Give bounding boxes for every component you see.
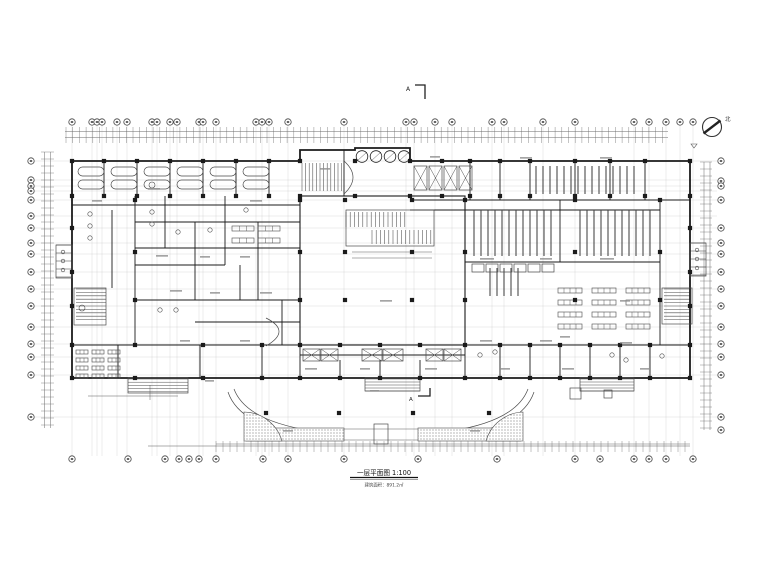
structural-column <box>573 298 577 302</box>
axis-bubble-number <box>720 305 722 307</box>
structural-column <box>264 411 268 415</box>
structural-column <box>658 298 662 302</box>
tiny-annotation-text <box>156 255 168 257</box>
axis-bubble-number <box>30 271 32 273</box>
table <box>92 350 104 354</box>
axis-bubble-number <box>648 121 650 123</box>
structural-column <box>688 270 692 274</box>
axis-bubble-number <box>188 458 190 460</box>
fixture-circle <box>174 308 178 312</box>
drawing-title: 一层平面图 1:100 <box>357 469 411 477</box>
structural-column <box>411 411 415 415</box>
structural-column <box>463 343 467 347</box>
axis-bubble-number <box>96 121 98 123</box>
fixture-rect <box>500 264 512 272</box>
structural-column <box>688 376 692 380</box>
fixture-circle <box>610 353 614 357</box>
structural-column <box>498 194 502 198</box>
tiny-annotation-text <box>320 168 330 170</box>
structural-column <box>338 376 342 380</box>
table <box>76 358 88 362</box>
structural-column <box>70 304 74 308</box>
axis-bubble-number <box>30 242 32 244</box>
table <box>232 226 254 231</box>
canopy-arc <box>344 161 353 194</box>
structural-column <box>648 343 652 347</box>
detail-line <box>385 152 395 161</box>
table <box>92 358 104 362</box>
structural-column <box>618 376 622 380</box>
hatched-fan <box>244 412 282 441</box>
axis-bubble-number <box>30 253 32 255</box>
structural-column <box>588 343 592 347</box>
structural-column <box>201 376 205 380</box>
structural-column <box>201 159 205 163</box>
axis-bubble-number <box>633 121 635 123</box>
tiny-annotation-text <box>148 188 160 190</box>
axis-bubble-number <box>720 160 722 162</box>
axis-bubble-number <box>720 416 722 418</box>
detail-line <box>371 152 381 161</box>
axis-bubble-number <box>665 121 667 123</box>
fixture-circle <box>176 230 180 234</box>
structural-column <box>463 250 467 254</box>
section-mark-top-bracket <box>415 85 425 99</box>
structural-column <box>343 198 347 202</box>
table <box>76 366 88 370</box>
structural-column <box>643 194 647 198</box>
fixture-rect <box>570 388 581 399</box>
structural-column <box>608 159 612 163</box>
structural-column <box>260 343 264 347</box>
tiny-annotation-text <box>240 340 250 342</box>
structural-column <box>201 194 205 198</box>
structural-column <box>337 411 341 415</box>
tiny-annotation-text <box>170 290 182 292</box>
structural-column <box>528 376 532 380</box>
structural-column <box>468 159 472 163</box>
section-mark-bottom-label: A <box>409 397 413 403</box>
tiny-annotation-text <box>425 368 437 370</box>
structural-column <box>487 411 491 415</box>
structural-column <box>102 194 106 198</box>
structural-column <box>608 194 612 198</box>
tiny-annotation-text <box>205 380 214 382</box>
axis-bubble-number <box>30 288 32 290</box>
tiny-annotation-text <box>620 300 630 302</box>
tiny-annotation-text <box>520 157 532 159</box>
structural-column <box>408 159 412 163</box>
axis-bubble-number <box>692 458 694 460</box>
axis-bubble-number <box>255 121 257 123</box>
fixture-rect <box>690 243 706 276</box>
axis-bubble-number <box>417 458 419 460</box>
equipment-stadium <box>111 167 137 176</box>
structural-column <box>234 194 238 198</box>
axis-bubble-number <box>215 458 217 460</box>
axis-bubble-number <box>720 429 722 431</box>
axis-bubble-number <box>30 343 32 345</box>
structural-column <box>70 226 74 230</box>
structural-column <box>498 159 502 163</box>
structural-column <box>378 376 382 380</box>
structural-column <box>343 250 347 254</box>
structural-column <box>298 343 302 347</box>
floorplan-drawing: 北 A A 一层平面图 1:100 建筑面积：891.2㎡ <box>0 0 760 570</box>
axis-bubble-number <box>30 215 32 217</box>
structural-column <box>70 376 74 380</box>
tiny-annotation-text <box>370 390 379 392</box>
structural-column <box>528 343 532 347</box>
tiny-annotation-text <box>360 368 370 370</box>
equipment-stadium <box>78 167 104 176</box>
tiny-annotation-text <box>560 336 570 338</box>
axis-bubble-number <box>30 160 32 162</box>
structural-column <box>658 198 662 202</box>
tiny-annotation-text <box>600 157 612 159</box>
tiny-annotation-text <box>260 292 272 294</box>
structural-column <box>70 343 74 347</box>
axis-bubble-number <box>720 271 722 273</box>
tiny-annotation-text <box>500 368 510 370</box>
courtyard-outline <box>300 196 465 345</box>
axis-bubble-number <box>101 121 103 123</box>
structural-column <box>298 298 302 302</box>
fixture-circle <box>88 224 92 228</box>
axis-bubble-number <box>30 190 32 192</box>
structural-column <box>70 194 74 198</box>
cad-floorplan-screenshot: 北 A A 一层平面图 1:100 建筑面积：891.2㎡ <box>0 0 760 570</box>
structural-column <box>343 298 347 302</box>
axis-bubble-number <box>30 416 32 418</box>
axis-bubble-number <box>720 227 722 229</box>
structural-column <box>298 376 302 380</box>
detail-line <box>357 152 367 161</box>
axis-bubble-number <box>287 458 289 460</box>
title-block: 一层平面图 1:100 建筑面积：891.2㎡ <box>350 469 418 489</box>
axis-bubble-number <box>720 343 722 345</box>
structural-column <box>298 198 302 202</box>
fixture-circle <box>158 308 162 312</box>
tiny-annotation-text <box>620 342 632 344</box>
structural-column <box>410 250 414 254</box>
structural-column <box>498 376 502 380</box>
structural-column <box>410 198 414 202</box>
table <box>76 350 88 354</box>
fixture-rect <box>472 264 484 272</box>
section-mark-bottom: A <box>409 388 430 403</box>
axis-bubble-number <box>156 121 158 123</box>
structural-column <box>573 198 577 202</box>
axis-bubble-number <box>574 121 576 123</box>
tiny-annotation-text <box>305 368 317 370</box>
structural-column <box>418 343 422 347</box>
axis-bubble-number <box>496 458 498 460</box>
axis-bubble-number <box>665 458 667 460</box>
tiny-annotation-text <box>380 300 392 302</box>
tiny-annotation-text <box>470 430 480 432</box>
table <box>92 366 104 370</box>
equipment-stadium <box>78 180 104 189</box>
axis-bubble-number <box>71 458 73 460</box>
equipment-stadium <box>210 180 236 189</box>
structural-column <box>573 159 577 163</box>
structural-column <box>267 159 271 163</box>
axis-bubble-number <box>720 288 722 290</box>
axis-bubble-number <box>679 121 681 123</box>
axis-bubble-number <box>202 121 204 123</box>
axis-bubble-number <box>692 121 694 123</box>
axis-bubble-number <box>413 121 415 123</box>
structural-column <box>588 376 592 380</box>
axis-bubble-number <box>126 121 128 123</box>
axis-bubble-number <box>720 326 722 328</box>
structural-column <box>688 159 692 163</box>
axis-bubble-number <box>599 458 601 460</box>
tiny-annotation-text <box>562 368 574 370</box>
axis-bubble-number <box>343 121 345 123</box>
structural-column <box>688 304 692 308</box>
structural-column <box>133 250 137 254</box>
structural-column <box>463 198 467 202</box>
tiny-annotation-text <box>210 292 220 294</box>
structural-column <box>378 343 382 347</box>
axis-bubble-number <box>30 179 32 181</box>
structural-column <box>408 194 412 198</box>
tiny-annotation-text <box>250 200 262 202</box>
axis-bubble-number <box>574 458 576 460</box>
fixture-circle <box>244 208 248 212</box>
axis-bubble-number <box>30 227 32 229</box>
structural-column <box>298 194 302 198</box>
structural-column <box>298 250 302 254</box>
axis-bubble-number <box>720 199 722 201</box>
axis-bubble-number <box>648 458 650 460</box>
axis-bubble-number <box>720 356 722 358</box>
axis-bubble-number <box>176 121 178 123</box>
structural-column <box>558 343 562 347</box>
fixture-rect <box>374 424 388 444</box>
axis-bubble-number <box>30 374 32 376</box>
axis-bubble-number <box>30 356 32 358</box>
north-label: 北 <box>725 115 731 123</box>
structural-column <box>70 159 74 163</box>
structural-column <box>688 194 692 198</box>
tiny-annotation-text <box>480 340 492 342</box>
axis-bubble-number <box>91 121 93 123</box>
structural-column <box>135 194 139 198</box>
fixture-rect <box>56 245 72 278</box>
axis-bubble-number <box>503 121 505 123</box>
table <box>232 238 254 243</box>
axis-bubble-number <box>169 121 171 123</box>
axis-bubble-number <box>491 121 493 123</box>
structural-column <box>102 159 106 163</box>
tiny-annotation-text <box>540 258 552 260</box>
fixture-rect <box>528 264 540 272</box>
axis-bubble-number <box>633 458 635 460</box>
structural-column <box>133 298 137 302</box>
hatched-fan <box>486 412 523 441</box>
axis-bubble-number <box>287 121 289 123</box>
axis-bubble-number <box>720 374 722 376</box>
structural-column <box>468 194 472 198</box>
structural-column <box>440 194 444 198</box>
fixture-rect <box>514 264 526 272</box>
structural-column <box>528 194 532 198</box>
fixture-circle <box>660 354 664 358</box>
axis-bubble-number <box>268 121 270 123</box>
axis-bubble-number <box>30 185 32 187</box>
structural-column <box>353 159 357 163</box>
axis-bubble-number <box>215 121 217 123</box>
structural-column <box>573 194 577 198</box>
axis-bubble-number <box>151 121 153 123</box>
axis-bubble-number <box>262 458 264 460</box>
detail-line <box>399 152 409 161</box>
north-arrow: 北 <box>691 115 731 148</box>
tiny-annotation-text <box>200 256 210 258</box>
structural-column <box>440 159 444 163</box>
structural-column <box>528 159 532 163</box>
fixture-circle <box>208 228 212 232</box>
fixture-circle <box>624 358 628 362</box>
structural-column <box>658 250 662 254</box>
axis-bubble-number <box>451 121 453 123</box>
axis-bubble-number <box>116 121 118 123</box>
structural-column <box>573 250 577 254</box>
structural-column <box>168 194 172 198</box>
structural-column <box>70 270 74 274</box>
dimension-lines <box>41 127 712 452</box>
tiny-annotation-text <box>600 258 614 260</box>
axis-bubble-number <box>30 305 32 307</box>
structural-column <box>133 343 137 347</box>
axis-bubble-number <box>71 121 73 123</box>
structural-column <box>298 159 302 163</box>
structural-column <box>133 376 137 380</box>
tiny-annotation-text <box>430 156 440 158</box>
structural-column <box>168 159 172 163</box>
fixture-circle <box>478 353 482 357</box>
structural-column <box>260 376 264 380</box>
drawing-subtitle: 建筑面积：891.2㎡ <box>365 482 405 489</box>
fixture-circle <box>493 350 497 354</box>
axis-bubble-number <box>343 458 345 460</box>
structural-column <box>410 298 414 302</box>
axis-bubble-number <box>198 458 200 460</box>
axis-bubble-number <box>261 121 263 123</box>
tiny-annotation-text <box>283 430 293 432</box>
axis-bubble-number <box>542 121 544 123</box>
axis-bubble-number <box>720 242 722 244</box>
section-mark-top-label: A <box>406 86 411 93</box>
structural-column <box>558 376 562 380</box>
tiny-annotation-text <box>540 340 552 342</box>
structural-column <box>135 159 139 163</box>
axis-bubble-number <box>434 121 436 123</box>
fixture-circle <box>88 212 92 216</box>
structural-column <box>234 159 238 163</box>
north-arrow-needle <box>704 121 721 134</box>
tiny-annotation-text <box>92 200 102 202</box>
axis-bubble-number <box>720 185 722 187</box>
structural-column <box>648 376 652 380</box>
equipment-stadium <box>111 180 137 189</box>
tiny-annotation-text <box>180 340 190 342</box>
structural-column <box>643 159 647 163</box>
equipment-stadium <box>210 167 236 176</box>
axis-bubble-number <box>405 121 407 123</box>
axis-bubble-number <box>720 180 722 182</box>
structural-column <box>498 343 502 347</box>
structural-column <box>201 343 205 347</box>
axis-bubble-number <box>164 458 166 460</box>
axis-bubble-number <box>720 253 722 255</box>
axis-bubble-number <box>30 199 32 201</box>
tiny-annotation-text <box>240 256 250 258</box>
structural-column <box>688 343 692 347</box>
axis-bubble-number <box>127 458 129 460</box>
axis-bubble-number <box>30 326 32 328</box>
structural-column <box>463 376 467 380</box>
structural-column <box>338 343 342 347</box>
structural-column <box>418 376 422 380</box>
plan-details <box>56 151 706 446</box>
section-mark-top: A <box>406 85 425 99</box>
structural-column <box>267 194 271 198</box>
fixture-rect <box>365 378 420 391</box>
elevation-mark-icon <box>691 144 697 148</box>
structural-column <box>688 226 692 230</box>
axis-bubble-number <box>178 458 180 460</box>
tiny-annotation-text <box>640 368 650 370</box>
tiny-annotation-text <box>480 258 494 260</box>
structural-column <box>133 198 137 202</box>
fixture-circle <box>88 236 92 240</box>
structural-column <box>353 194 357 198</box>
fixture-rect <box>542 264 554 272</box>
structural-column <box>463 298 467 302</box>
